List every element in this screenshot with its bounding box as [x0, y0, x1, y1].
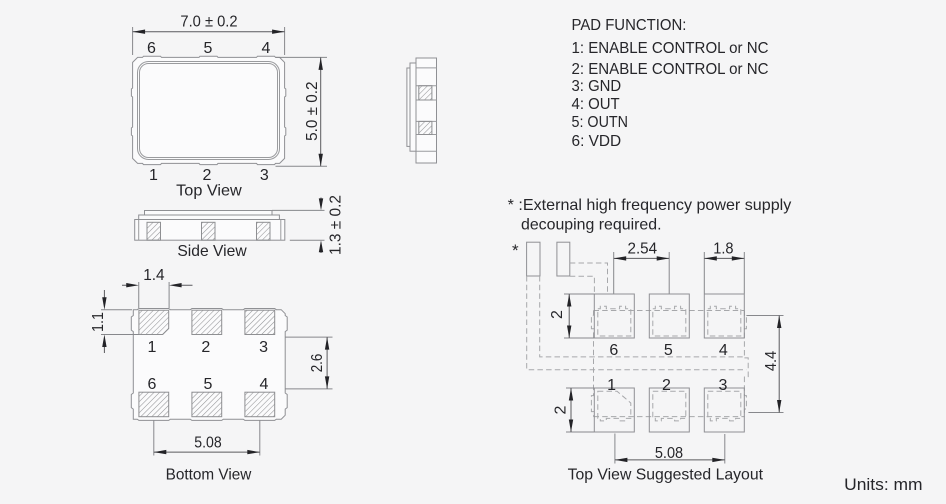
svg-text:2: 2	[662, 377, 671, 394]
svg-text:5: OUTN: 5: OUTN	[572, 114, 629, 131]
svg-text:5.08: 5.08	[194, 434, 221, 451]
svg-text:5: 5	[204, 376, 213, 393]
svg-text:3: 3	[719, 377, 728, 394]
svg-text:2.6: 2.6	[309, 354, 326, 373]
svg-text:5.08: 5.08	[655, 445, 683, 462]
svg-text:1.3 ± 0.2: 1.3 ± 0.2	[327, 195, 344, 255]
svg-text:4: 4	[719, 342, 728, 359]
svg-text:6: 6	[147, 40, 156, 57]
svg-text:1: 1	[149, 167, 158, 184]
svg-text:2: 2	[201, 339, 210, 356]
svg-text:5: 5	[204, 40, 213, 57]
svg-text:2: 2	[549, 310, 566, 319]
svg-text:3: GND: 3: GND	[572, 78, 622, 95]
svg-text:Side View: Side View	[177, 243, 247, 260]
svg-text:PAD FUNCTION:: PAD FUNCTION:	[572, 17, 687, 34]
svg-text:Top View: Top View	[176, 182, 242, 199]
svg-text:5.0 ± 0.2: 5.0 ± 0.2	[304, 81, 321, 140]
svg-text:1: 1	[148, 339, 157, 356]
svg-text:7.0 ± 0.2: 7.0 ± 0.2	[180, 14, 237, 31]
svg-text:4: 4	[262, 40, 271, 57]
svg-text:6: VDD: 6: VDD	[572, 133, 622, 150]
svg-text:1: 1	[607, 377, 616, 394]
svg-text:4.4: 4.4	[763, 351, 780, 371]
svg-text:3: 3	[259, 339, 268, 356]
svg-text:1.8: 1.8	[713, 241, 733, 258]
svg-text:4: 4	[260, 376, 269, 393]
svg-text:Top View Suggested Layout: Top View Suggested Layout	[568, 467, 764, 484]
svg-text:Bottom View: Bottom View	[166, 467, 252, 484]
svg-text:2: ENABLE CONTROL or NC: 2: ENABLE CONTROL or NC	[572, 61, 769, 78]
svg-text:*: *	[512, 241, 519, 260]
svg-text:1: ENABLE CONTROL or NC: 1: ENABLE CONTROL or NC	[572, 40, 769, 57]
svg-text:2: 2	[553, 405, 570, 414]
svg-text:6: 6	[148, 376, 157, 393]
svg-text:4: OUT: 4: OUT	[572, 96, 621, 113]
svg-text:decouping required.: decouping required.	[521, 217, 662, 234]
svg-text:3: 3	[260, 167, 269, 184]
svg-text:1.4: 1.4	[143, 267, 164, 284]
svg-text:Units: mm: Units: mm	[844, 475, 923, 494]
svg-text:6: 6	[609, 342, 618, 359]
svg-text:2.54: 2.54	[628, 241, 658, 258]
svg-text:* :External high frequency pow: * :External high frequency power supply	[508, 197, 792, 214]
svg-text:1.1: 1.1	[90, 312, 107, 332]
svg-text:5: 5	[664, 342, 673, 359]
